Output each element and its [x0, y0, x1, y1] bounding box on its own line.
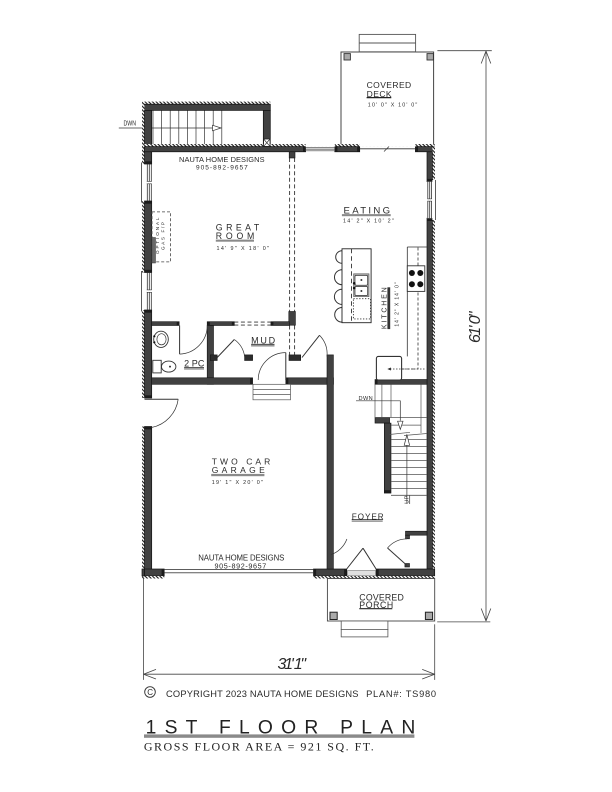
svg-text:19' 1" X 20' 0": 19' 1" X 20' 0": [212, 480, 263, 486]
svg-text:905-892-9657: 905-892-9657: [215, 562, 267, 571]
svg-text:C: C: [147, 688, 153, 697]
svg-text:COPYRIGHT 2023 NAUTA HOME DESI: COPYRIGHT 2023 NAUTA HOME DESIGNS: [166, 689, 359, 699]
svg-text:PLAN#: TS980: PLAN#: TS980: [366, 689, 436, 699]
svg-text:14' 2" X 14' 0": 14' 2" X 14' 0": [395, 282, 401, 326]
svg-text:905-892-9657: 905-892-9657: [196, 165, 248, 172]
svg-text:31' 1": 31' 1": [278, 656, 308, 673]
svg-text:DWN: DWN: [124, 120, 137, 127]
svg-text:10' 0" X 10' 0": 10' 0" X 10' 0": [368, 103, 418, 109]
svg-text:OPTIONAL: OPTIONAL: [155, 217, 160, 254]
svg-text:NAUTA HOME DESIGNS: NAUTA HOME DESIGNS: [179, 155, 265, 164]
svg-text:14' 9" X 18' 0": 14' 9" X 18' 0": [217, 246, 270, 252]
svg-text:14' 2" X 10' 2": 14' 2" X 10' 2": [343, 219, 394, 225]
svg-text:61' 0": 61' 0": [467, 310, 484, 343]
svg-text:GROSS FLOOR AREA = 921 SQ. FT.: GROSS FLOOR AREA = 921 SQ. FT.: [144, 739, 374, 753]
